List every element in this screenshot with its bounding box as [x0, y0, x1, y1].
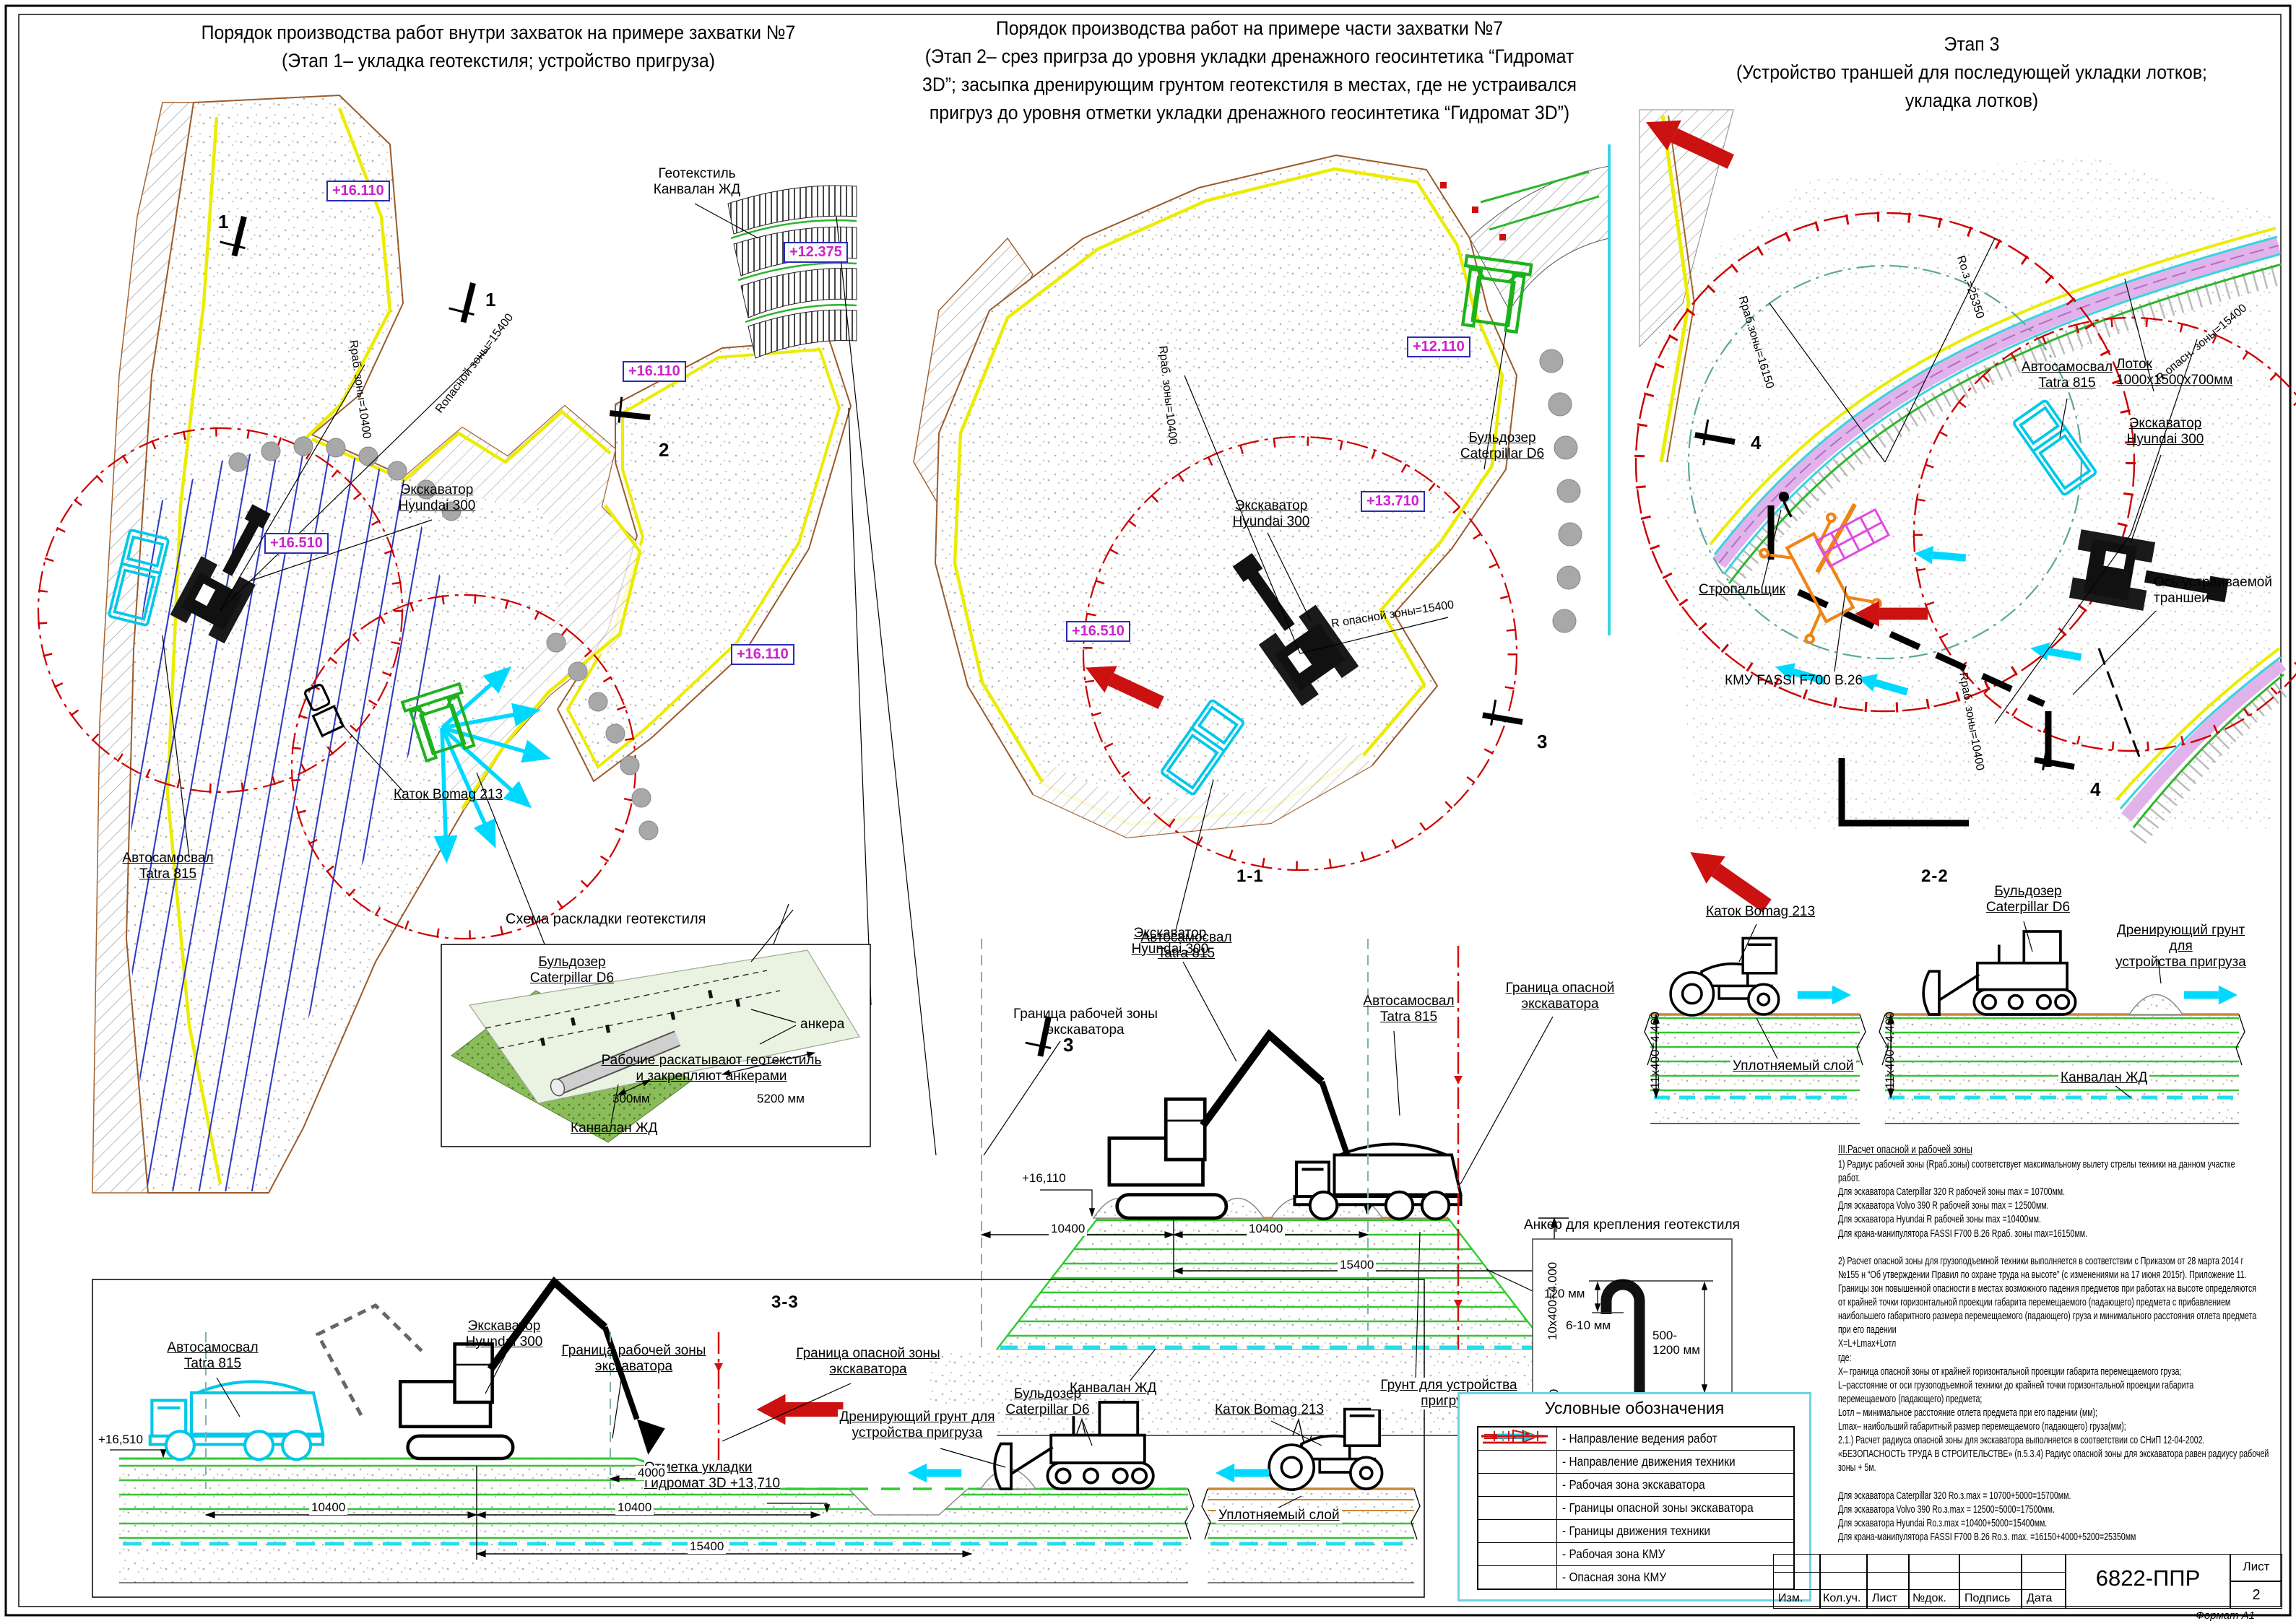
sec33-danger-boundary-label: Граница опасной зоны экскаватора: [789, 1346, 948, 1378]
sec33-dozer-label: Бульдозер Caterpillar D6: [988, 1386, 1107, 1418]
sec11-dim: 10400: [1049, 1222, 1087, 1236]
plan3-title: Этап 3 (Устройство траншей для последующ…: [1712, 30, 2231, 115]
plan3-rigger-label: Стропальщик: [1699, 582, 1785, 598]
section-2-2-title: 2-2: [1921, 866, 1949, 887]
plan2-boulders: [1540, 349, 1582, 633]
legend-title: Условные обозначения: [1460, 1399, 1809, 1418]
sec33-dim: 15400: [688, 1539, 726, 1554]
sec11-elevation: +16,110: [1022, 1171, 1066, 1186]
plan1-workers-label: Рабочие раскатывают геотекстиль и закреп…: [589, 1053, 834, 1085]
section-mark-number: 1: [485, 289, 495, 311]
plan1-dozer-label: Бульдозер Caterpillar D6: [514, 955, 630, 986]
sec33-uplotn-label: Уплотняемый слой: [1216, 1508, 1342, 1524]
inset-dim-5200: 5200 мм: [757, 1092, 805, 1106]
sec22-dozer-label: Бульдозер Caterpillar D6: [1970, 884, 2086, 916]
format-label: Формат А1: [2196, 1609, 2255, 1621]
sec33-dren-label: Дренирующий грунт для устройства пригруз…: [838, 1409, 997, 1441]
plan3-axis-label: Ось устраиваемой траншеи: [2154, 575, 2272, 607]
sec33-roller-label: Каток Bomag 213: [1215, 1402, 1324, 1418]
sheet-label: Лист: [2230, 1560, 2282, 1574]
elevation-badge: +13.710: [1361, 491, 1425, 512]
sec33-truck-label: Автосамосвал Tatra 815: [153, 1340, 272, 1372]
sec22-uplotn-label: Уплотняемый слой: [1730, 1059, 1856, 1074]
notes-heading: III.Расчет опасной и рабочей зоны: [1838, 1144, 2281, 1157]
legend-row: - Опасная зона КМУ: [1478, 1565, 1793, 1589]
plan3-kmu-label: КМУ FASSI F700 B.26: [1725, 673, 1863, 689]
sec33-dim: 10400: [615, 1500, 654, 1515]
sec22-roller-label: Каток Bomag 213: [1706, 904, 1815, 920]
plan1-truck-label: Автосамосвал Tatra 815: [108, 851, 228, 882]
tb-col-koluch: Кол.уч.: [1823, 1592, 1860, 1605]
geotextile-label: Геотекстиль Канвалан ЖД: [636, 166, 758, 198]
section-mark-number: 3: [1537, 731, 1547, 753]
drawing-sheet: Порядок производства работ внутри захват…: [0, 0, 2296, 1621]
sec22-roller-icon: [1671, 938, 1779, 1015]
sec11-dim-vert: 10х400=4.000: [1546, 1262, 1560, 1340]
legend-row: - Направление движения техники: [1478, 1450, 1793, 1473]
sec33-work-boundary-label: Граница рабочей зоны экскаватора: [556, 1343, 711, 1375]
machine-borders-dash-icon: [1478, 1520, 1557, 1542]
excavator-work-zone-dash-icon: [1478, 1474, 1557, 1496]
tb-col-izm: Изм.: [1778, 1592, 1803, 1605]
elevation-badge: +16.510: [1066, 621, 1130, 642]
sec22-dim-vert: 11х400=4.400: [1648, 1012, 1663, 1089]
kmu-work-zone-dashdot-icon: [1478, 1543, 1557, 1565]
elevation-badge: +12.375: [784, 242, 848, 263]
sec11-excavator-label: Экскаватор Hyundai 300: [1112, 926, 1228, 957]
sec11-work-boundary-label: Граница рабочей зоны экскаватора: [1010, 1007, 1161, 1038]
elevation-badge: +16.110: [731, 644, 794, 665]
section-mark-number: 2: [659, 439, 669, 461]
tb-col-list: Лист: [1872, 1592, 1897, 1605]
sec33-truck-icon: [150, 1381, 323, 1459]
inset-anchors-label: анкера: [800, 1017, 844, 1033]
sec22-kanvalan-label: Канвалан ЖД: [2058, 1070, 2149, 1086]
sheet-number: 2: [2230, 1587, 2282, 1604]
tb-col-podpis: Подпись: [1964, 1592, 2010, 1605]
legend-table: - Направление ведения работ - Направлени…: [1477, 1426, 1795, 1590]
plan2-dozer-label: Бульдозер Caterpillar D6: [1441, 430, 1564, 462]
legend-row: - Рабочая зона КМУ: [1478, 1542, 1793, 1565]
inset-title: Схема раскладки геотекстиля: [506, 911, 706, 928]
kmu-danger-crossline-icon: [1478, 1566, 1557, 1589]
sec11-dim: 15400: [1338, 1258, 1376, 1272]
elevation-badge: +16.110: [623, 361, 686, 382]
excavator-danger-flag-icon: [1478, 1497, 1557, 1519]
sec33-dim-4000: 4000: [636, 1466, 667, 1480]
elevation-badge: +12.110: [1407, 336, 1470, 357]
section-mark-number: 4: [1751, 432, 1761, 454]
elevation-badge: +16.110: [326, 181, 390, 201]
plan3-drawing: [1636, 107, 2296, 919]
section-mark-number: 1: [218, 211, 228, 233]
section-3-3-title: 3-3: [771, 1292, 799, 1313]
sec22-dren-label: Дренирующий грунт для устройства пригруз…: [2103, 923, 2258, 970]
legend-row: - Границы движения техники: [1478, 1519, 1793, 1542]
machine-move-arrow-icon: [1478, 1451, 1557, 1473]
tb-col-data: Дата: [2027, 1592, 2052, 1605]
section-1-1-title: 1-1: [1236, 866, 1264, 887]
plan2-excavator-label: Экскаватор Hyundai 300: [1213, 498, 1329, 530]
notes-body: 1) Радиус рабочей зоны (Rраб.зоны) соотв…: [1838, 1158, 2281, 1544]
plan2-title: Порядок производства работ на примере ча…: [914, 14, 1585, 128]
plan3-truck-label: Автосамосвал Tatra 815: [2009, 360, 2125, 391]
anchor-dim-120: 120 мм: [1544, 1287, 1585, 1301]
document-number: 6822-ППР: [2066, 1565, 2230, 1591]
sec33-elevation: +16,510: [98, 1433, 143, 1447]
sec22-dozer-icon: [1923, 931, 2075, 1014]
sec11-danger-boundary-label: Граница опасной экскаватора: [1495, 981, 1625, 1012]
sec33-dim: 10400: [309, 1500, 347, 1515]
anchor-dim-6-10: 6-10 мм: [1566, 1318, 1611, 1333]
plan1-roller-label: Каток Bomag 213: [394, 787, 503, 803]
sec11-dim: 10400: [1247, 1222, 1285, 1236]
sec33-excavator-label: Экскаватор Hyundai 300: [446, 1318, 562, 1350]
legend-box: Условные обозначения - Направление веден…: [1457, 1392, 1811, 1602]
sec11-truck-icon: [1295, 1144, 1461, 1220]
section-mark-number: 4: [2090, 778, 2100, 801]
legend-row: - Рабочая зона экскаватора: [1478, 1473, 1793, 1496]
elevation-badge: +16.510: [264, 533, 329, 554]
anchor-detail-title: Анкер для крепления геотекстиля: [1524, 1217, 1740, 1233]
plan3-excavator-label: Экскаватор Hyundai 300: [2107, 416, 2223, 448]
legend-row: - Границы опасной зоны экскаватора: [1478, 1496, 1793, 1519]
inset-dim-300: 300мм: [612, 1092, 650, 1106]
inset-kanvalan-label: Канвалан ЖД: [571, 1121, 657, 1137]
sec11-truck-label: Автосамосвал Tatra 815: [1349, 994, 1468, 1025]
plan2-drawing: [914, 144, 1609, 1058]
plan1-excavator-label: Экскаватор Hyundai 300: [379, 482, 495, 514]
tb-col-ndok: №док.: [1912, 1592, 1946, 1605]
plan1-railway-bands: [728, 186, 857, 358]
sec22-dim-vert: 11х400=4.400: [1883, 1012, 1897, 1089]
plan1-title: Порядок производства работ внутри захват…: [189, 19, 807, 75]
calculation-notes: III.Расчет опасной и рабочей зоны 1) Рад…: [1838, 1144, 2281, 1544]
anchor-dim-500-1200: 500- 1200 мм: [1652, 1329, 1700, 1357]
